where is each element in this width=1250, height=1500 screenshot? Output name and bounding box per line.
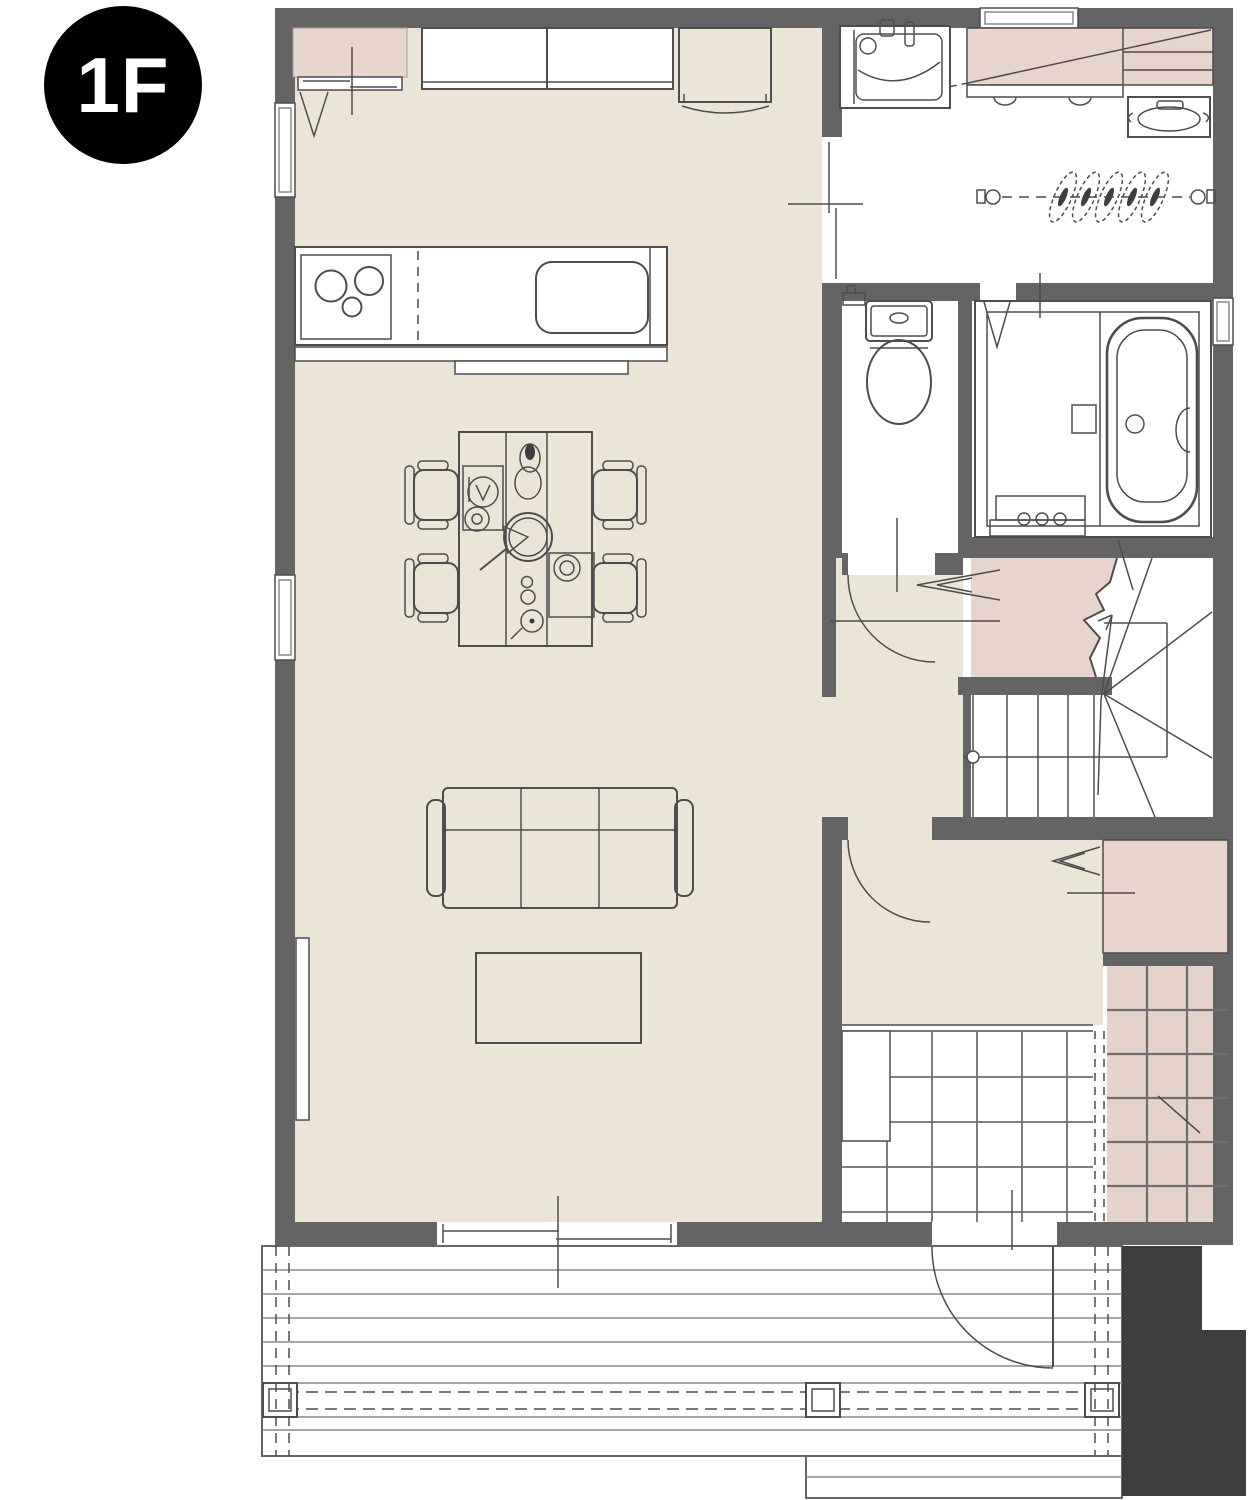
wall-ldk-hall — [822, 558, 836, 697]
kitchen-cabinet-left — [422, 28, 547, 89]
sliding-door-ldk-deck — [437, 1222, 677, 1245]
deck-post-right — [1085, 1383, 1119, 1417]
wall-bath-bottom — [958, 537, 1213, 558]
deck-post-left — [263, 1383, 297, 1417]
deck-step — [806, 1456, 1122, 1498]
washing-machine — [1128, 97, 1210, 137]
wood-deck — [262, 1246, 1122, 1498]
porch-floor — [1107, 966, 1228, 1222]
wall-toilet-bath — [958, 301, 972, 537]
bath-door-opening — [980, 283, 1016, 301]
floor-plan-page: 1F — [0, 0, 1250, 1500]
exterior-dark-blocks — [1122, 1246, 1246, 1496]
tv-board — [296, 938, 309, 1120]
kitchen-cabinet-right — [547, 28, 673, 89]
ldk-hall-opening-floor — [822, 697, 836, 817]
shoe-closet — [1103, 840, 1228, 953]
floor-badge: 1F — [44, 6, 202, 164]
floor-plan-drawing — [0, 0, 1250, 1500]
entrance-hall-floor — [842, 840, 1103, 1025]
kitchen-counter — [295, 247, 667, 374]
entrance-bench — [842, 1031, 890, 1141]
wall-washroom-bath — [842, 283, 1213, 301]
toilet-floor — [842, 301, 958, 553]
hall-entrance-opening — [848, 817, 932, 840]
toilet-door-opening — [848, 553, 935, 575]
wall-ldk-entrance — [822, 817, 842, 1222]
entrance-door-opening — [932, 1222, 1057, 1245]
kitchen-appliance — [679, 28, 771, 113]
wall-bottom — [275, 1222, 1233, 1245]
floor-badge-label: 1F — [76, 40, 169, 131]
wall-understair — [958, 677, 1112, 695]
wall-top — [275, 8, 1233, 28]
sliding-door-washroom — [822, 137, 842, 283]
wall-closet-porch — [1103, 953, 1228, 966]
washbasin — [840, 20, 950, 108]
window-bathroom — [1213, 298, 1233, 345]
deck-post-middle — [806, 1383, 840, 1417]
wall-right — [1213, 8, 1233, 1245]
hall-floor — [836, 558, 963, 817]
window-top-washroom — [980, 8, 1078, 28]
window-left-lower — [275, 575, 295, 660]
window-left-upper — [275, 103, 295, 197]
